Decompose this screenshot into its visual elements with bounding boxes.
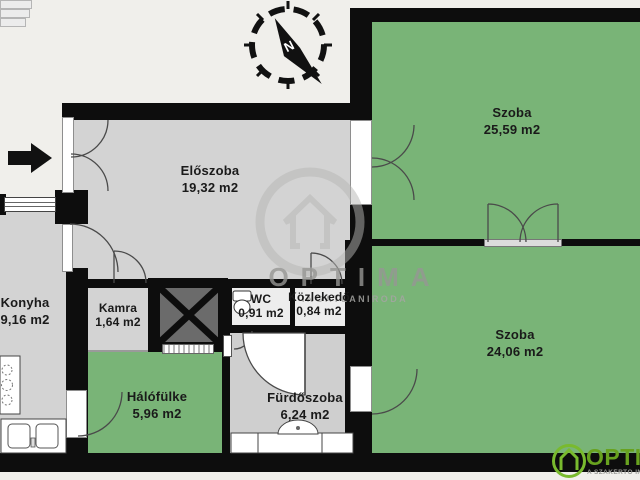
kitchen-window-lines [5, 202, 55, 207]
double-door-threshold [484, 239, 562, 247]
label-furdoszoba: Fürdőszoba 6,24 m2 [243, 389, 367, 423]
room-area: 5,96 m2 [97, 405, 217, 422]
halofulke-door-frame [66, 390, 87, 438]
compass-icon: N [244, 1, 332, 94]
room-name: Kamra [58, 301, 178, 315]
kozlekedo-door-opening [0, 9, 30, 18]
bath-radiator [223, 335, 232, 357]
wall-top-eloszoba [62, 103, 354, 120]
room-name: Fürdőszoba [243, 389, 367, 406]
room-name: Hálófülke [97, 388, 217, 405]
label-szoba-top: Szoba 25,59 m2 [452, 104, 572, 138]
room-konyha [0, 212, 66, 453]
north-label: N [281, 37, 296, 55]
logo-tagline-text: A SZAKÉRTŐ INGATLANIRODA [587, 469, 640, 476]
shaft-vent-window [162, 344, 214, 354]
room-area: 1,64 m2 [58, 315, 178, 329]
label-kozlekedo: Közlekedő 0,84 m2 [259, 290, 379, 318]
wall-wc-bottom [227, 325, 290, 333]
label-szoba-bottom: Szoba 24,06 m2 [455, 326, 575, 360]
szoba-top-door-frame [350, 120, 372, 205]
wall-top-szoba [350, 8, 640, 22]
room-name: Közlekedő [259, 290, 379, 304]
wall-kozlekedo-bottom [290, 326, 345, 334]
room-area: 19,32 m2 [150, 179, 270, 196]
kamra-door-opening [0, 0, 32, 9]
north-needle: N [267, 13, 322, 94]
room-name: Szoba [452, 104, 572, 121]
bath-door-opening [0, 18, 26, 27]
floorplan: N OPTIMA INGATLANIRODA Előszoba 19,32 m2… [0, 0, 640, 480]
room-area: 24,06 m2 [455, 343, 575, 360]
room-area: 6,24 m2 [243, 406, 367, 423]
wall-entrance-block [55, 190, 88, 224]
wall-right-mid [350, 203, 372, 243]
logo-brand-text: OPTIMA [586, 444, 640, 471]
label-eloszoba: Előszoba 19,32 m2 [150, 162, 270, 196]
kitchen-door-frame [62, 224, 73, 272]
label-halofulke: Hálófülke 5,96 m2 [97, 388, 217, 422]
room-eloszoba [70, 120, 352, 281]
entrance-door-frame [62, 117, 74, 193]
room-name: Előszoba [150, 162, 270, 179]
label-kamra: Kamra 1,64 m2 [58, 301, 178, 329]
room-name: Szoba [455, 326, 575, 343]
entrance-arrow-icon [8, 143, 52, 173]
wall-right-upper [350, 8, 372, 122]
room-area: 25,59 m2 [452, 121, 572, 138]
watermark-brand: OPTIMA [252, 262, 458, 293]
wall-bottom [0, 453, 640, 472]
room-area: 0,84 m2 [259, 304, 379, 318]
